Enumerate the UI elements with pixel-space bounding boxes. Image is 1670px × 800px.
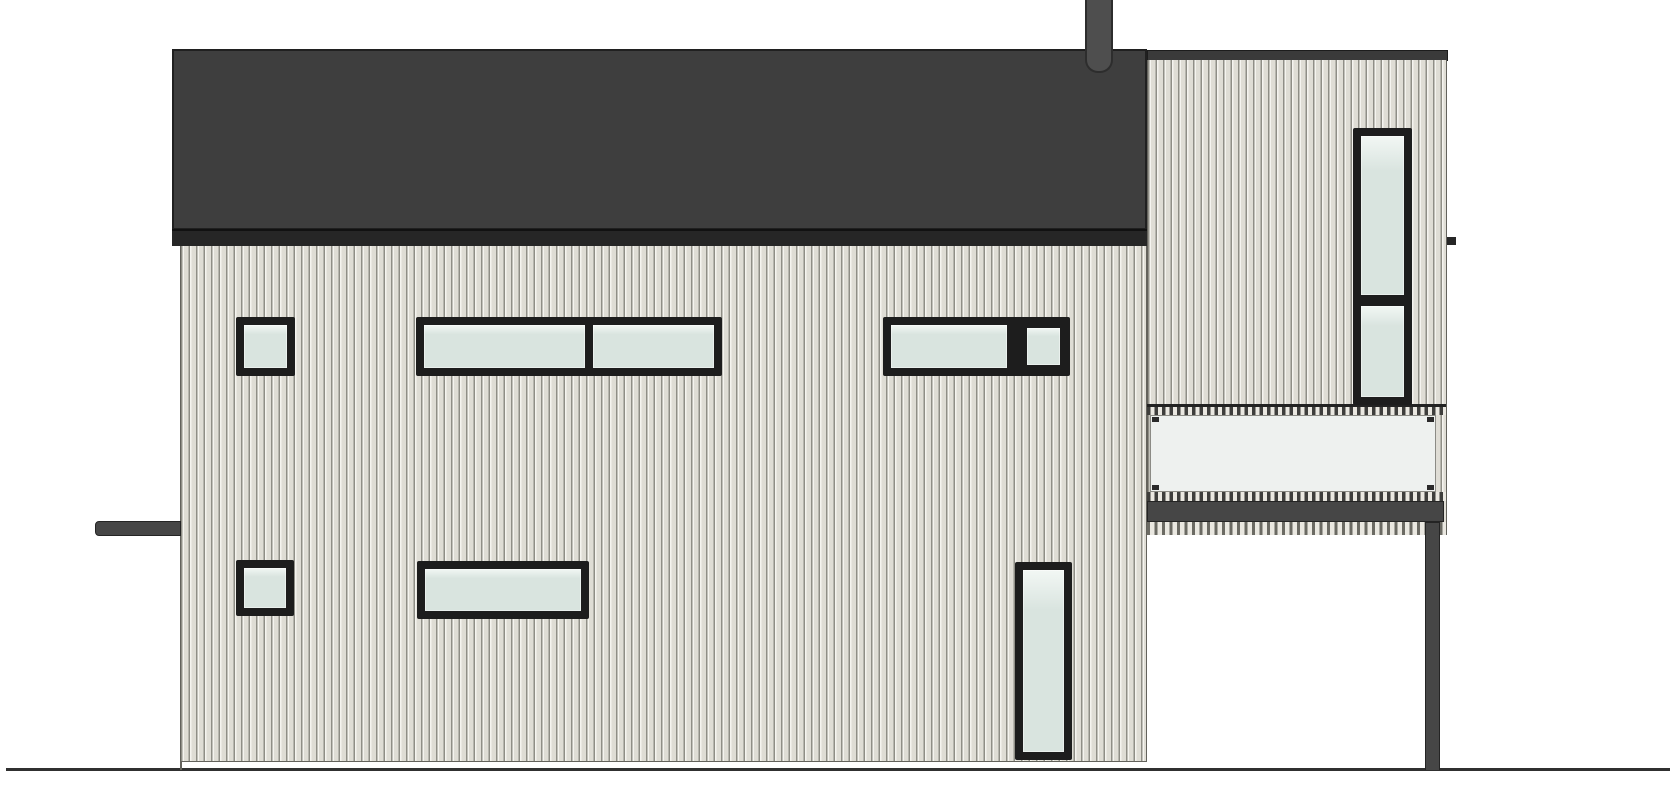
lower-left-small-window — [236, 560, 294, 616]
upper-left-small-window — [236, 317, 295, 376]
upper-middle-double-window — [416, 317, 722, 376]
window-glass-pane — [244, 325, 287, 368]
lower-middle-wide-window — [417, 561, 589, 619]
window-glass-pane — [593, 325, 714, 368]
window-glass-pane — [1361, 136, 1404, 295]
window-glass-pane — [1361, 306, 1404, 397]
elevation-canvas — [0, 0, 1670, 800]
window-glass-pane — [425, 569, 581, 611]
window-glass-pane — [1027, 328, 1060, 365]
windows-layer — [0, 0, 1670, 800]
window-glass-pane — [1023, 570, 1064, 752]
window-glass-pane — [244, 568, 286, 608]
tower-tall-window — [1353, 128, 1412, 405]
window-glass-pane — [424, 325, 585, 368]
upper-right-group-window — [883, 317, 1070, 376]
window-glass-pane — [891, 325, 1007, 368]
lower-right-tall-window — [1015, 562, 1072, 760]
